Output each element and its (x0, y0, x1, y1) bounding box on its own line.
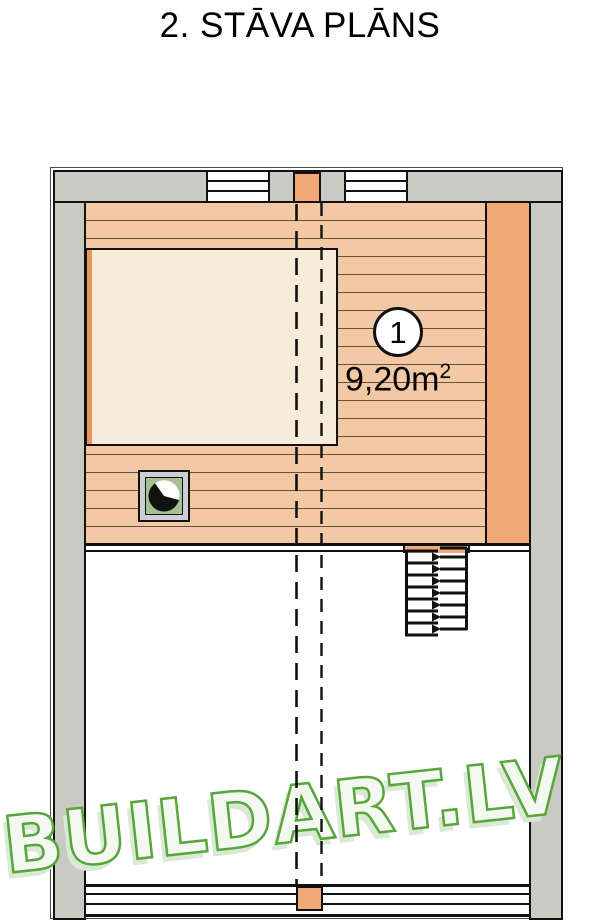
room-area-value: 9,20m (345, 360, 440, 398)
flue-symbol (138, 470, 190, 522)
vent-window-left (206, 170, 270, 203)
bottom-band-line (86, 914, 529, 917)
flue-inner-square (145, 477, 183, 515)
void-edge-line-right (468, 550, 529, 552)
vent-slat-line (346, 190, 406, 192)
flue-circle-icon (146, 478, 182, 514)
vent-slat-line (208, 180, 268, 182)
loft-ceiling-area (85, 248, 338, 446)
room-number-badge: 1 (373, 307, 423, 357)
room-area-sup: 2 (440, 360, 452, 383)
stairs (405, 546, 468, 638)
loft-edge-strip (87, 250, 92, 444)
vent-slat-line (346, 180, 406, 182)
vent-slat-line (208, 190, 268, 192)
floor-accent-strip (485, 203, 529, 545)
chimney-top (293, 172, 321, 203)
room-area-label: 9,20m2 (345, 360, 451, 399)
floor-plan-page: 2. STĀVA PLĀNS 1 9,20m2 (0, 0, 600, 920)
void-edge-line-left (86, 550, 405, 552)
page-title: 2. STĀVA PLĀNS (0, 6, 600, 46)
chimney-bottom (296, 886, 323, 911)
vent-window-right (344, 170, 408, 203)
